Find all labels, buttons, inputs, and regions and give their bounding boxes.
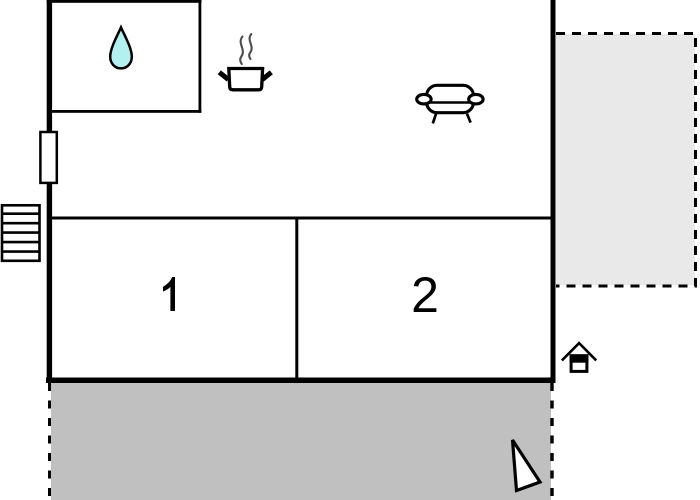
svg-text:2: 2 bbox=[411, 267, 439, 323]
